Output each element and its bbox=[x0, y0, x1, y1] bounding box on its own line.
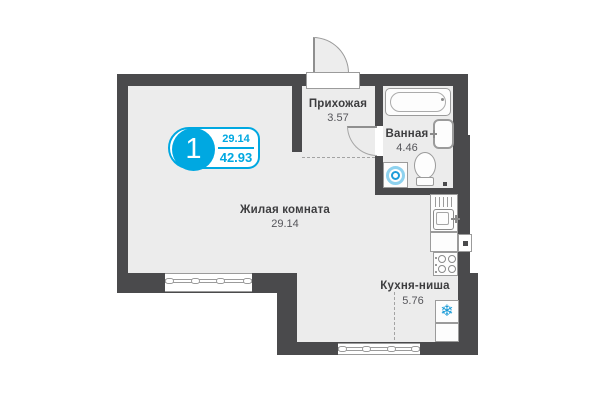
window-vent-icon bbox=[362, 346, 371, 352]
toilet-base bbox=[416, 177, 434, 186]
washer-drum-outer bbox=[386, 166, 405, 185]
wall-right-kitchen bbox=[458, 190, 470, 273]
window-rail bbox=[165, 279, 252, 280]
rooms-count: 1 bbox=[185, 133, 201, 166]
rooms-count-badge: 1 bbox=[172, 128, 215, 171]
window-rail bbox=[338, 347, 420, 348]
stove-icon bbox=[433, 252, 458, 276]
room-label-bathroom: Ванная bbox=[367, 128, 447, 140]
stove-burner bbox=[438, 255, 446, 263]
wall-right-mid bbox=[453, 135, 470, 195]
stove-burner bbox=[438, 265, 446, 273]
vent-shaft bbox=[458, 234, 472, 252]
window-vent-icon bbox=[411, 346, 420, 352]
fraction-divider bbox=[218, 147, 254, 149]
room-area-bathroom: 4.46 bbox=[367, 142, 447, 154]
window-vent-icon bbox=[165, 278, 174, 284]
stove-knob bbox=[435, 257, 437, 259]
window-vent-icon bbox=[387, 346, 396, 352]
vent-shaft-dot bbox=[463, 241, 468, 246]
room-area-hallway: 3.57 bbox=[288, 112, 388, 124]
room-area-living: 29.14 bbox=[225, 218, 345, 230]
stove-knob bbox=[435, 264, 437, 266]
window-living bbox=[165, 273, 252, 292]
kitchen-counter-bottom bbox=[435, 323, 459, 342]
entrance-door-swing-arc bbox=[313, 37, 349, 73]
kitchen-sink-counter bbox=[430, 194, 458, 232]
drainboard-icon bbox=[435, 197, 455, 207]
window-vent-icon bbox=[338, 346, 347, 352]
area-fraction: 29.14 42.93 bbox=[216, 133, 256, 165]
washer-drum-inner bbox=[391, 171, 400, 180]
stove-burner bbox=[448, 265, 456, 273]
room-label-kitchen: Кухня-ниша bbox=[365, 280, 465, 292]
wall-right-upper bbox=[453, 74, 468, 135]
room-label-hallway: Прихожая bbox=[288, 98, 388, 110]
hallway-zone-dashed-line bbox=[302, 157, 375, 158]
stove-burner bbox=[448, 255, 456, 263]
living-area-value: 29.14 bbox=[216, 133, 256, 146]
window-vent-icon bbox=[216, 278, 225, 284]
plan-badge: 1 29.14 42.93 bbox=[168, 127, 260, 169]
wall-left bbox=[117, 74, 128, 293]
entrance-door bbox=[306, 72, 360, 89]
bathtub-drain bbox=[441, 98, 444, 101]
kitchen-sink-tap bbox=[455, 215, 457, 223]
kitchen-sink-icon bbox=[433, 209, 454, 230]
window-rail bbox=[338, 350, 420, 351]
kitchen-counter-mid bbox=[430, 232, 458, 252]
window-rail bbox=[165, 282, 252, 283]
window-kitchen bbox=[338, 343, 420, 355]
floor-plan: ❄ Прихожая 3.57 Ванная 4.46 Жилая комнат… bbox=[0, 0, 600, 400]
room-area-kitchen: 5.76 bbox=[363, 295, 463, 307]
kitchen-sink-bowl bbox=[436, 212, 449, 225]
window-vent-icon bbox=[191, 278, 200, 284]
room-label-living: Жилая комната bbox=[225, 204, 345, 216]
bathtub-icon bbox=[385, 88, 451, 116]
total-area-value: 42.93 bbox=[216, 150, 256, 165]
stove-knob bbox=[435, 271, 437, 273]
bathroom-wall-dot bbox=[443, 182, 447, 186]
window-vent-icon bbox=[243, 278, 252, 284]
washing-machine-icon bbox=[383, 162, 408, 188]
toilet-icon bbox=[414, 152, 436, 179]
bathtub-inner bbox=[390, 92, 446, 112]
